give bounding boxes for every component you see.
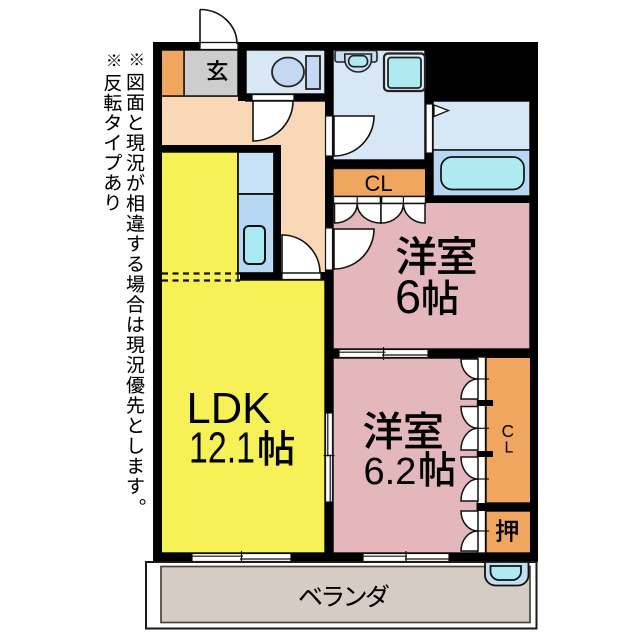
svg-text:L: L xyxy=(505,440,514,457)
svg-text:12.1: 12.1 xyxy=(189,425,255,473)
svg-text:CL: CL xyxy=(365,171,393,196)
svg-text:6.2: 6.2 xyxy=(364,451,417,493)
svg-text:6: 6 xyxy=(395,270,421,323)
svg-text:C: C xyxy=(502,421,515,441)
